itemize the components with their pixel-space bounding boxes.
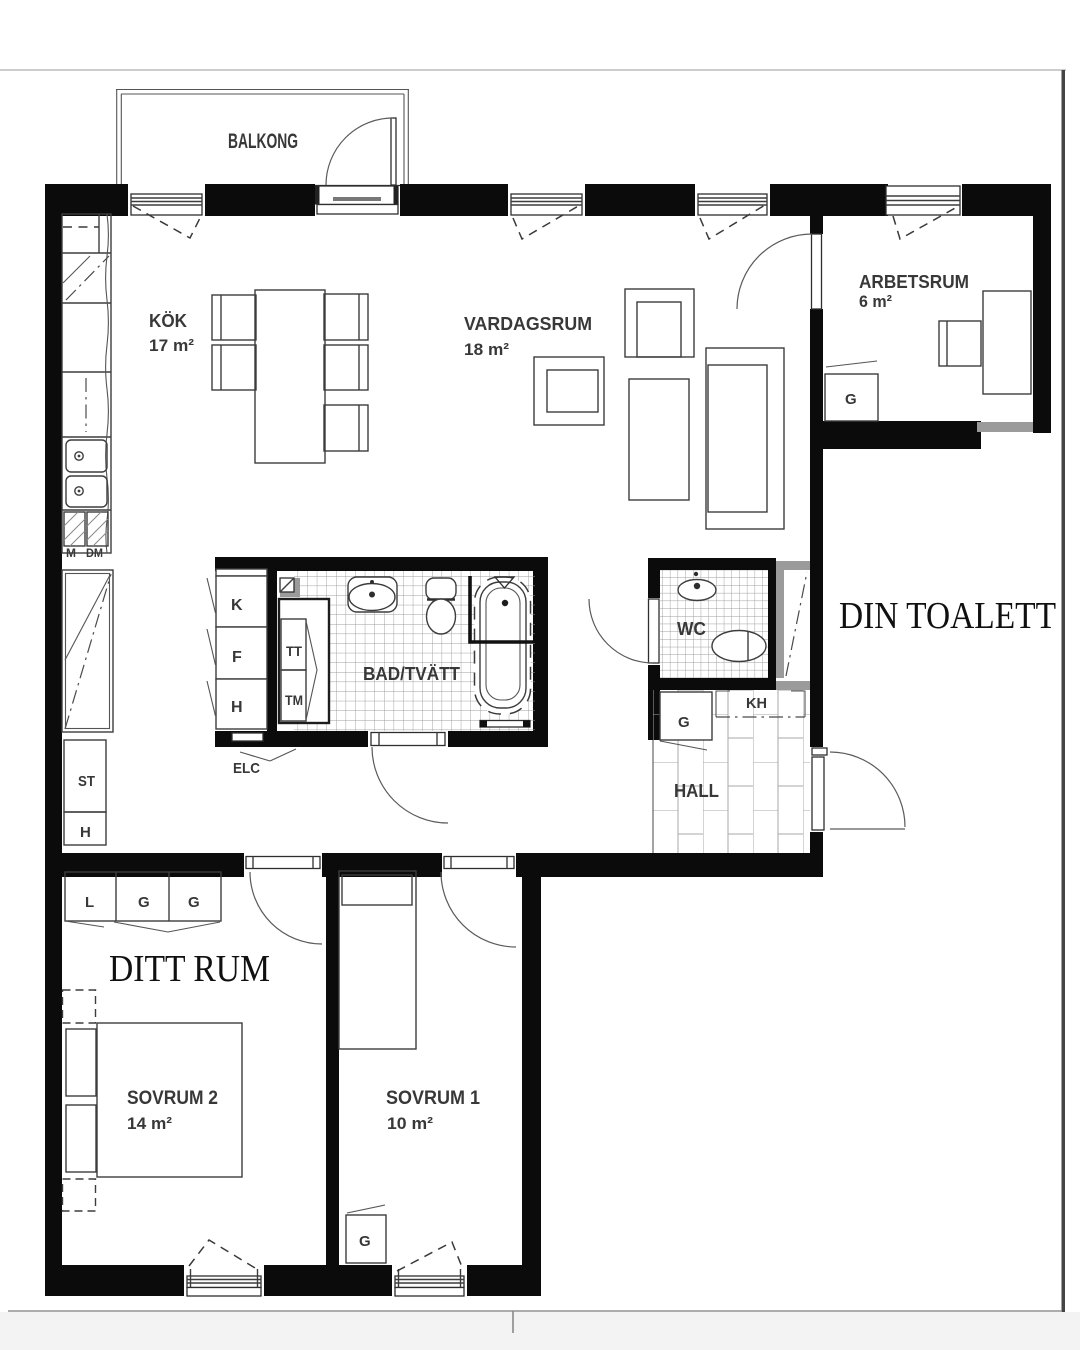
svg-text:WC: WC: [677, 619, 706, 639]
svg-text:G: G: [678, 714, 690, 731]
svg-text:M: M: [66, 546, 76, 560]
svg-text:F: F: [232, 649, 242, 666]
svg-text:BAD/TVÄTT: BAD/TVÄTT: [363, 664, 460, 684]
svg-text:17 m²: 17 m²: [149, 336, 194, 355]
svg-text:G: G: [359, 1233, 371, 1250]
svg-text:ELC: ELC: [233, 760, 260, 777]
svg-text:H: H: [80, 824, 91, 841]
svg-text:G: G: [188, 894, 200, 911]
svg-text:SOVRUM 2: SOVRUM 2: [127, 1088, 218, 1109]
svg-text:L: L: [85, 894, 94, 911]
svg-text:SOVRUM 1: SOVRUM 1: [386, 1088, 480, 1109]
svg-text:DM: DM: [86, 546, 103, 560]
svg-text:H: H: [231, 699, 243, 716]
svg-text:BALKONG: BALKONG: [228, 130, 298, 153]
svg-text:HALL: HALL: [674, 781, 719, 801]
svg-text:DITT RUM: DITT RUM: [109, 948, 270, 990]
svg-text:TT: TT: [286, 643, 302, 659]
svg-text:TM: TM: [285, 692, 303, 708]
svg-text:KH: KH: [746, 695, 767, 712]
svg-text:G: G: [138, 894, 150, 911]
svg-text:VARDAGSRUM: VARDAGSRUM: [464, 314, 592, 334]
svg-text:ARBETSRUM: ARBETSRUM: [859, 272, 969, 292]
svg-text:KÖK: KÖK: [149, 311, 187, 331]
svg-text:10 m²: 10 m²: [387, 1114, 433, 1133]
svg-text:18 m²: 18 m²: [464, 340, 509, 359]
svg-text:6 m²: 6 m²: [859, 292, 892, 311]
svg-text:K: K: [231, 597, 243, 614]
svg-text:14 m²: 14 m²: [127, 1114, 172, 1133]
svg-text:ST: ST: [78, 773, 95, 790]
svg-text:DIN TOALETT: DIN TOALETT: [839, 595, 1056, 637]
svg-text:G: G: [845, 391, 857, 408]
